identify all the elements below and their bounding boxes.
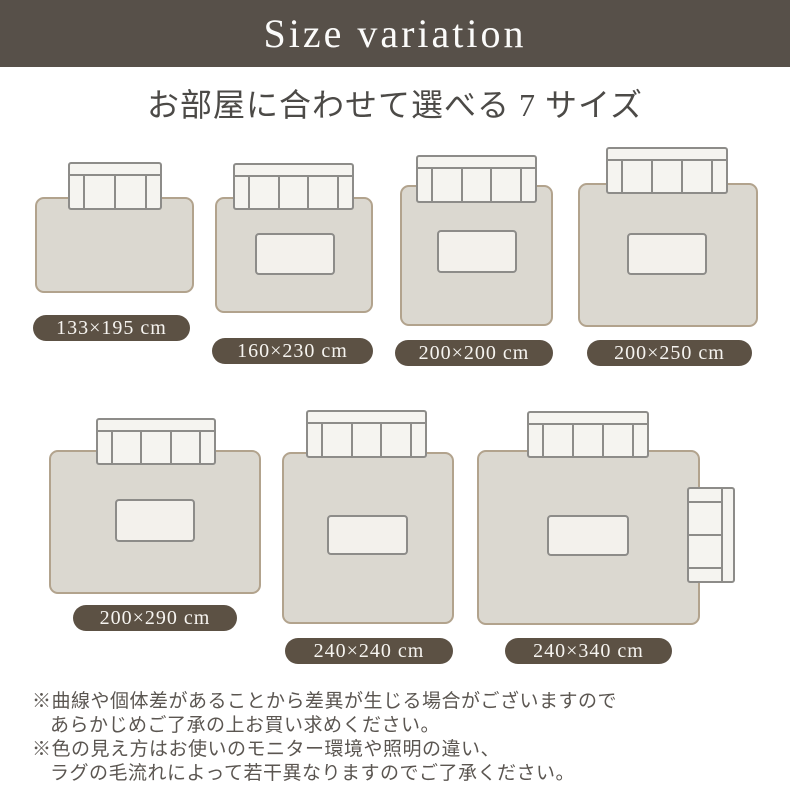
sofa-backrest — [608, 149, 726, 161]
sofa-cushion — [351, 424, 381, 456]
sofa-cushion — [689, 534, 721, 567]
sofa-cushion — [621, 161, 651, 192]
table-shape — [437, 230, 517, 273]
sofa-armrest — [235, 177, 248, 208]
sofa-cushion — [689, 501, 721, 534]
sofa-cushion — [651, 161, 681, 192]
sofa-body — [608, 161, 726, 192]
size-card-200x200: 200×200 cm — [395, 155, 553, 365]
size-label: 133×195 cm — [33, 315, 190, 341]
sofa-backrest — [529, 413, 647, 425]
sofa-cushion — [321, 424, 351, 456]
footer-notes: ※曲線や個体差があることから差異が生じる場合がございますので あらかじめご了承の… — [32, 690, 772, 786]
sofa-backrest — [721, 489, 733, 581]
sofa-backrest — [308, 412, 425, 424]
sofa-top-view-icon — [527, 411, 649, 458]
sofa-cushion — [572, 425, 602, 456]
sofa-armrest — [70, 176, 83, 208]
sofa-body — [689, 489, 721, 581]
note-line: ※色の見え方はお使いのモニター環境や照明の違い、 — [32, 738, 772, 762]
size-card-200x290: 200×290 cm — [49, 418, 261, 629]
side-sofa-top-view-icon — [687, 487, 735, 583]
size-label: 200×200 cm — [395, 340, 553, 366]
size-label: 240×340 cm — [505, 638, 672, 664]
sofa-top-view-icon — [68, 162, 162, 210]
note-line: あらかじめご了承の上お買い求めください。 — [50, 714, 772, 738]
size-card-200x250: 200×250 cm — [578, 147, 758, 365]
sofa-body — [98, 432, 214, 463]
size-label: 200×290 cm — [73, 605, 237, 631]
sofa-top-view-icon — [96, 418, 216, 465]
sofa-armrest — [145, 176, 160, 208]
sofa-top-view-icon — [606, 147, 728, 194]
page-title: Size variation — [263, 10, 526, 57]
table-shape — [627, 233, 707, 275]
sofa-body — [529, 425, 647, 456]
size-card-240x340: 240×340 cm — [477, 411, 735, 665]
sofa-cushion — [170, 432, 199, 463]
note-line: ラグの毛流れによって若干異なりますのでご了承ください。 — [50, 762, 772, 786]
sofa-top-view-icon — [306, 410, 427, 458]
sofa-armrest — [689, 567, 721, 581]
sofa-armrest — [98, 432, 111, 463]
sofa-body — [235, 177, 352, 208]
sofa-armrest — [711, 161, 726, 192]
sofa-cushion — [490, 169, 520, 201]
sofa-armrest — [337, 177, 352, 208]
sofa-armrest — [199, 432, 214, 463]
sofa-armrest — [520, 169, 535, 201]
sofa-cushion — [681, 161, 711, 192]
sofa-armrest — [308, 424, 321, 456]
size-variation-panel: Size variation お部屋に合わせて選べる 7 サイズ 133×195… — [0, 0, 790, 790]
size-card-160x230: 160×230 cm — [212, 163, 375, 363]
sofa-cushion — [307, 177, 337, 208]
sofa-cushion — [602, 425, 632, 456]
sofa-armrest — [689, 489, 721, 501]
sofa-backrest — [70, 164, 160, 176]
sofa-cushion — [380, 424, 410, 456]
sofa-cushion — [248, 177, 278, 208]
sofa-top-view-icon — [416, 155, 537, 203]
sofa-armrest — [410, 424, 425, 456]
size-label: 160×230 cm — [212, 338, 373, 364]
sofa-cushion — [111, 432, 140, 463]
sofa-armrest — [418, 169, 431, 201]
size-label: 200×250 cm — [587, 340, 752, 366]
size-card-240x240: 240×240 cm — [282, 410, 454, 664]
sofa-top-view-icon — [233, 163, 354, 210]
sofa-body — [418, 169, 535, 201]
sofa-cushion — [140, 432, 169, 463]
table-shape — [547, 515, 629, 556]
sofa-backrest — [235, 165, 352, 177]
table-shape — [115, 499, 195, 542]
header-banner: Size variation — [0, 0, 790, 67]
sofa-cushion — [461, 169, 491, 201]
note-line: ※曲線や個体差があることから差異が生じる場合がございますので — [32, 690, 772, 714]
sofa-backrest — [98, 420, 214, 432]
table-shape — [327, 515, 408, 555]
sofa-armrest — [529, 425, 542, 456]
size-card-133x195: 133×195 cm — [33, 162, 194, 340]
sofa-cushion — [83, 176, 114, 208]
sofa-cushion — [114, 176, 145, 208]
sofa-backrest — [418, 157, 535, 169]
sofa-armrest — [632, 425, 647, 456]
sofa-armrest — [608, 161, 621, 192]
sofa-body — [308, 424, 425, 456]
table-shape — [255, 233, 335, 275]
sofa-cushion — [431, 169, 461, 201]
subtitle: お部屋に合わせて選べる 7 サイズ — [0, 80, 790, 126]
size-label: 240×240 cm — [285, 638, 453, 664]
sofa-cushion — [542, 425, 572, 456]
sofa-cushion — [278, 177, 308, 208]
rug-shape — [35, 197, 194, 293]
sofa-body — [70, 176, 160, 208]
